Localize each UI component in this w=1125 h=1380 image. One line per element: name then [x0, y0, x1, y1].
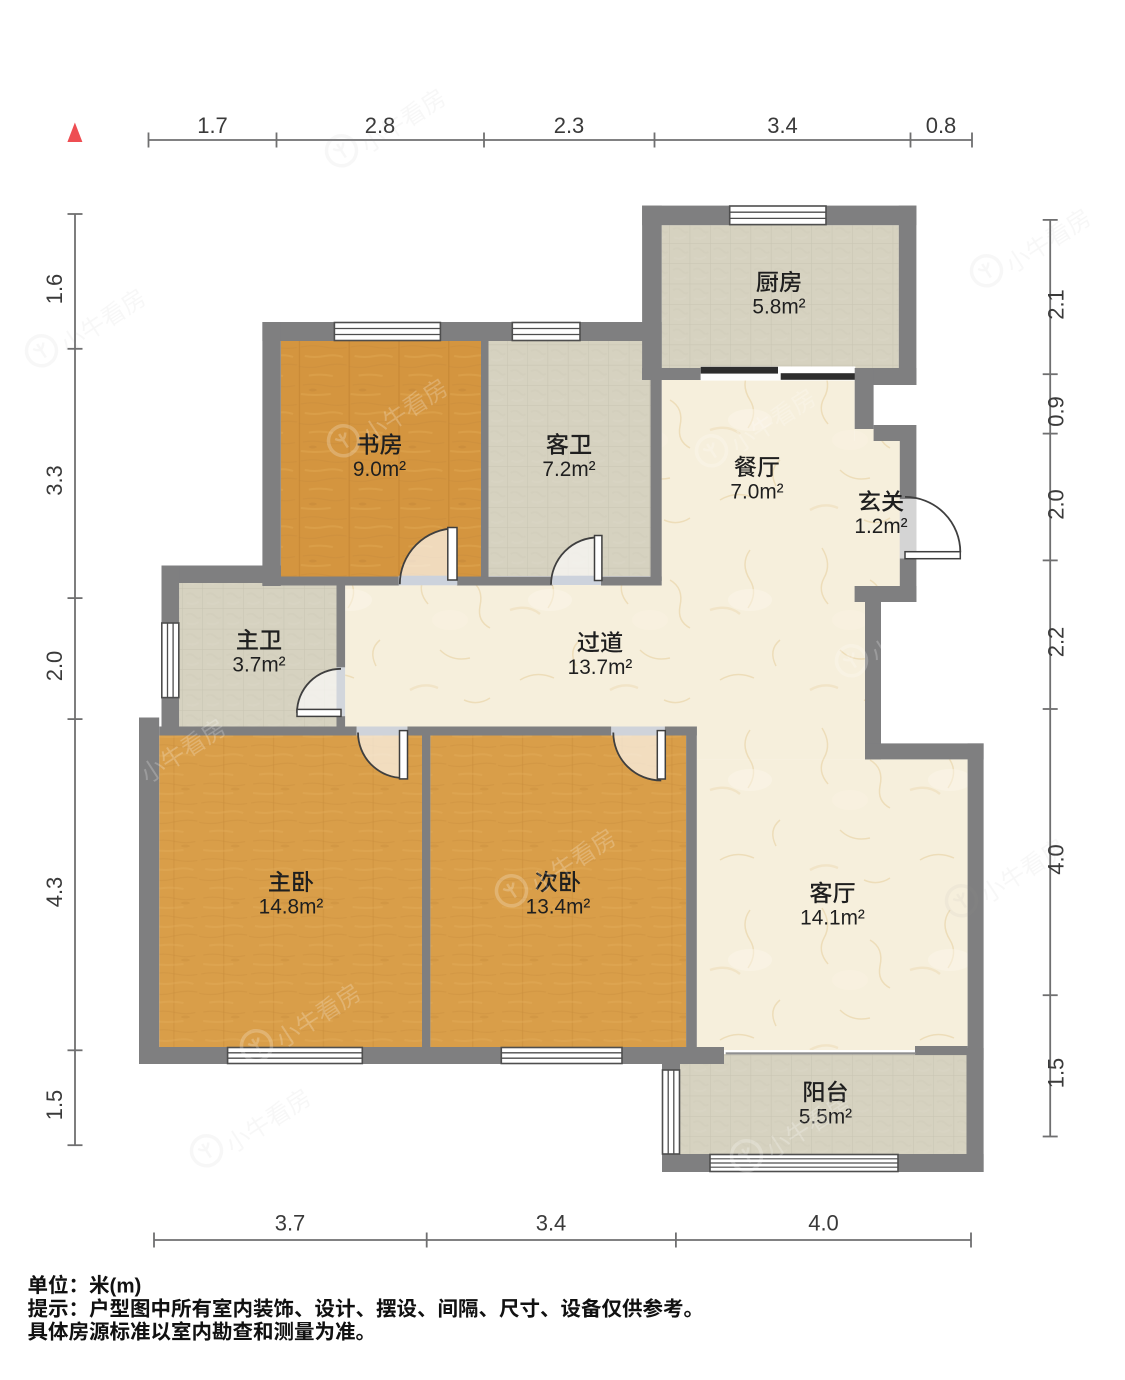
svg-text:7.2m²: 7.2m²: [542, 458, 595, 481]
svg-text:3.7: 3.7: [275, 1211, 306, 1236]
svg-text:13.4m²: 13.4m²: [526, 895, 591, 918]
svg-text:5.8m²: 5.8m²: [752, 295, 805, 318]
svg-text:14.8m²: 14.8m²: [259, 895, 324, 918]
svg-text:0.9: 0.9: [1044, 396, 1069, 427]
svg-text:7.0m²: 7.0m²: [730, 480, 783, 503]
svg-text:1.6: 1.6: [42, 274, 67, 305]
svg-text:2.0: 2.0: [1044, 489, 1069, 520]
svg-text:3.4: 3.4: [536, 1211, 567, 1236]
svg-text:4.0: 4.0: [1044, 844, 1069, 875]
svg-text:13.7m²: 13.7m²: [568, 656, 633, 679]
svg-text:14.1m²: 14.1m²: [800, 906, 865, 929]
svg-text:(m): (m): [110, 1274, 142, 1297]
svg-text:4.3: 4.3: [42, 877, 67, 908]
svg-text:2.3: 2.3: [554, 113, 585, 138]
svg-text:1.5: 1.5: [1044, 1058, 1069, 1089]
svg-text:2.2: 2.2: [1044, 627, 1069, 658]
svg-text:1.2m²: 1.2m²: [854, 515, 907, 538]
svg-text:3.7m²: 3.7m²: [232, 653, 285, 676]
svg-text:3.4: 3.4: [767, 113, 798, 138]
svg-text:2.0: 2.0: [42, 651, 67, 682]
svg-text:4.0: 4.0: [808, 1211, 839, 1236]
svg-text:9.0m²: 9.0m²: [353, 458, 406, 481]
svg-text:1.7: 1.7: [197, 113, 228, 138]
svg-text:0.8: 0.8: [926, 113, 957, 138]
svg-text:3.3: 3.3: [42, 465, 67, 496]
svg-text:1.5: 1.5: [42, 1090, 67, 1121]
svg-text:2.1: 2.1: [1044, 289, 1069, 320]
